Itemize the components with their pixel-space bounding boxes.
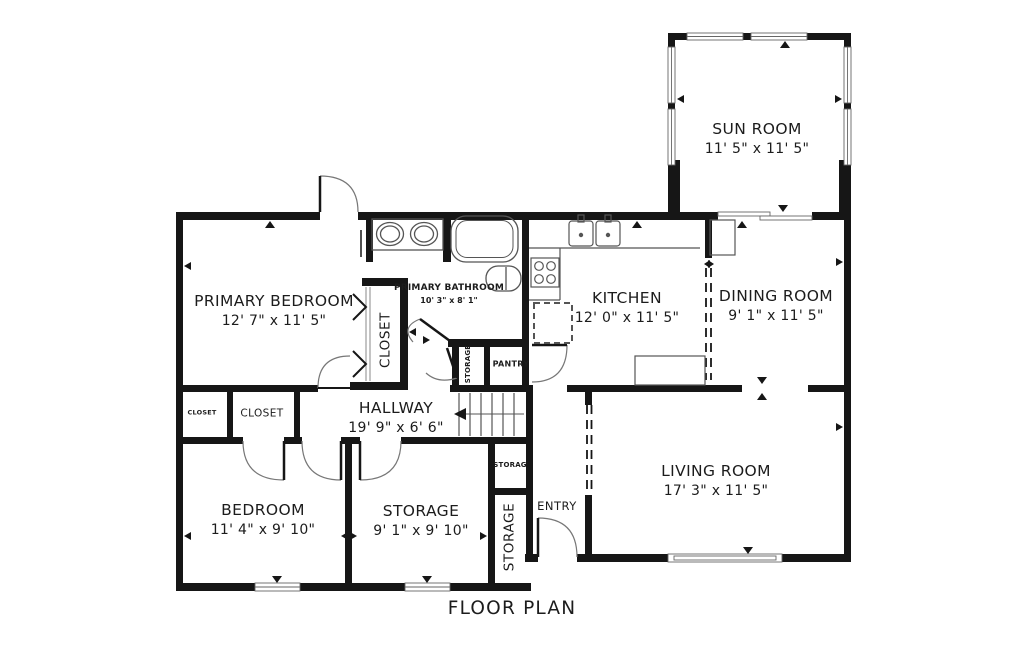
room-label-closet-primary: CLOSET [376, 312, 395, 368]
room-label-pantry: PANTRY [493, 358, 530, 369]
kitchen-peninsula [635, 356, 705, 385]
room-label-dining-room: DINING ROOM9' 1" x 11' 5" [719, 285, 833, 327]
room-label-storage-room: STORAGE9' 1" x 9' 10" [373, 500, 468, 542]
dining-cabinet [710, 220, 735, 255]
room-label-closet-small: CLOSET [188, 408, 217, 417]
stairs [454, 393, 524, 436]
room-label-entry: ENTRY [537, 498, 577, 514]
room-label-storage-under-stairs: STORAG [493, 461, 527, 471]
room-label-primary-bedroom: PRIMARY BEDROOM12' 7" x 11' 5" [194, 290, 354, 332]
room-label-hallway: HALLWAY19' 9" x 6' 6" [348, 397, 443, 439]
room-label-kitchen: KITCHEN12' 0" x 11' 5" [575, 287, 680, 329]
room-label-sun-room: SUN ROOM11' 5" x 11' 5" [705, 118, 810, 160]
room-label-storage-hall-closet: STORAGE [464, 345, 474, 384]
room-label-primary-bathroom: PRIMARY BATHROOM10' 3" x 8' 1" [394, 282, 504, 306]
room-label-storage-entry: STORAGE [500, 503, 519, 571]
room-label-bedroom: BEDROOM11' 4" x 9' 10" [211, 499, 316, 541]
refrigerator [534, 303, 572, 343]
room-label-living-room: LIVING ROOM17' 3" x 11' 5" [661, 460, 771, 502]
bathtub [451, 216, 518, 262]
room-label-closet-hall: CLOSET [240, 407, 283, 422]
stove [531, 258, 559, 287]
page-title: FLOOR PLAN [448, 596, 577, 622]
closet-bifold-doors [353, 287, 370, 381]
stairs-direction-arrow [454, 408, 466, 420]
floor-plan: SUN ROOM11' 5" x 11' 5" PRIMARY BEDROOM1… [0, 0, 1024, 655]
